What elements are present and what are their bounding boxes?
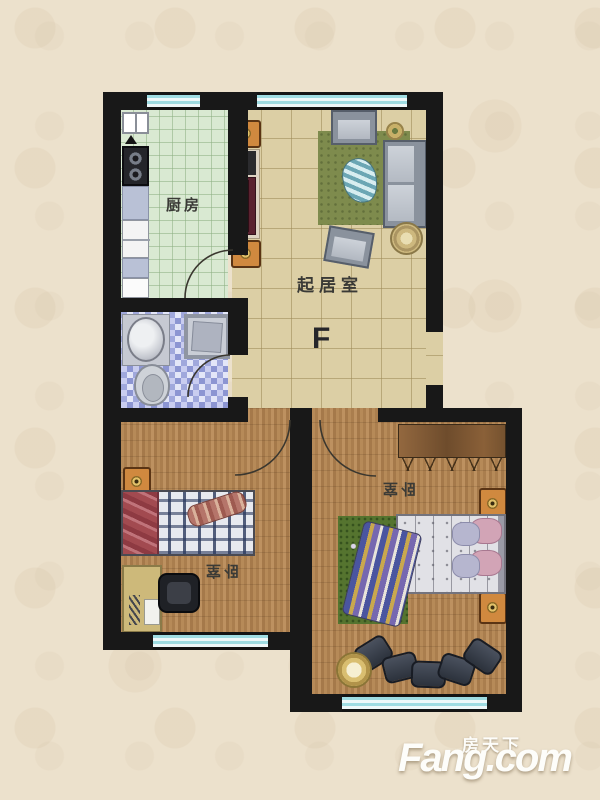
kitchen-window <box>147 92 200 110</box>
wall-right-exterior <box>426 92 443 332</box>
desk-accessory <box>129 595 140 625</box>
hanger-marks-icon <box>398 458 506 471</box>
wall-kitchen-living-divider <box>228 110 248 255</box>
living-room-label: 起居室 <box>297 271 363 296</box>
living-room-window <box>257 92 407 110</box>
wall-segment <box>228 298 248 355</box>
plant-icon <box>386 122 404 140</box>
armchair <box>323 225 375 268</box>
right-bedroom-window <box>342 694 487 712</box>
toilet <box>134 364 170 406</box>
wall-segment <box>312 694 342 712</box>
office-chair <box>158 573 200 613</box>
floor-plan-page: 厨房 起居室 F 卧室 卧室 房天下 Fang.com <box>0 0 600 800</box>
wall-segment <box>268 632 312 650</box>
sofa-cushion <box>388 185 414 221</box>
kitchen-counter <box>122 186 149 220</box>
wall-bedroom-divider <box>290 408 312 712</box>
side-table <box>390 222 423 255</box>
wall-segment <box>103 632 153 650</box>
left-bedroom-label: 卧室 <box>203 561 239 582</box>
sofa-cushion <box>388 146 414 182</box>
sink-divider <box>135 114 137 132</box>
shower-tray <box>191 321 223 353</box>
wall-bathroom-bedroom <box>103 408 232 422</box>
burner-icon <box>129 152 142 165</box>
washbasin <box>127 317 165 362</box>
desk <box>122 565 162 633</box>
wall-right-exterior <box>506 412 522 712</box>
wall-segment <box>487 694 522 712</box>
living-room-floor-recess <box>426 332 443 385</box>
wall-left-exterior <box>103 92 121 650</box>
round-floor-lamp <box>336 652 372 688</box>
wall-living-bedroom <box>378 408 522 422</box>
shower <box>184 314 230 359</box>
rolled-blanket <box>185 489 249 528</box>
kitchen-counter <box>122 258 149 278</box>
armchair <box>331 110 377 145</box>
left-bedroom-window <box>153 632 268 650</box>
watermark-logo-text: Fang.com <box>398 736 571 781</box>
pillow <box>452 522 480 546</box>
pillow <box>123 492 159 554</box>
toilet-seat <box>142 374 164 402</box>
sofa <box>383 140 427 228</box>
wall-segment <box>426 385 443 415</box>
refrigerator <box>122 220 149 258</box>
wardrobe <box>398 424 506 458</box>
chair-seat <box>167 582 191 604</box>
watermark: 房天下 Fang.com <box>394 724 600 794</box>
burner-icon <box>129 168 142 181</box>
nightstand <box>479 592 507 624</box>
kitchen-sink <box>122 112 149 134</box>
fridge-door-line <box>123 239 150 241</box>
direction-triangle-icon <box>125 135 137 144</box>
wall-segment <box>200 92 257 110</box>
wall-kitchen-bathroom <box>103 298 235 312</box>
kitchen-cabinet <box>122 278 149 298</box>
stove <box>122 146 149 186</box>
kitchen-label: 厨房 <box>166 194 202 215</box>
right-bedroom-label: 卧室 <box>380 479 416 500</box>
pillow <box>452 554 480 578</box>
unit-type-mark: F <box>312 322 330 356</box>
single-bed <box>121 490 255 556</box>
